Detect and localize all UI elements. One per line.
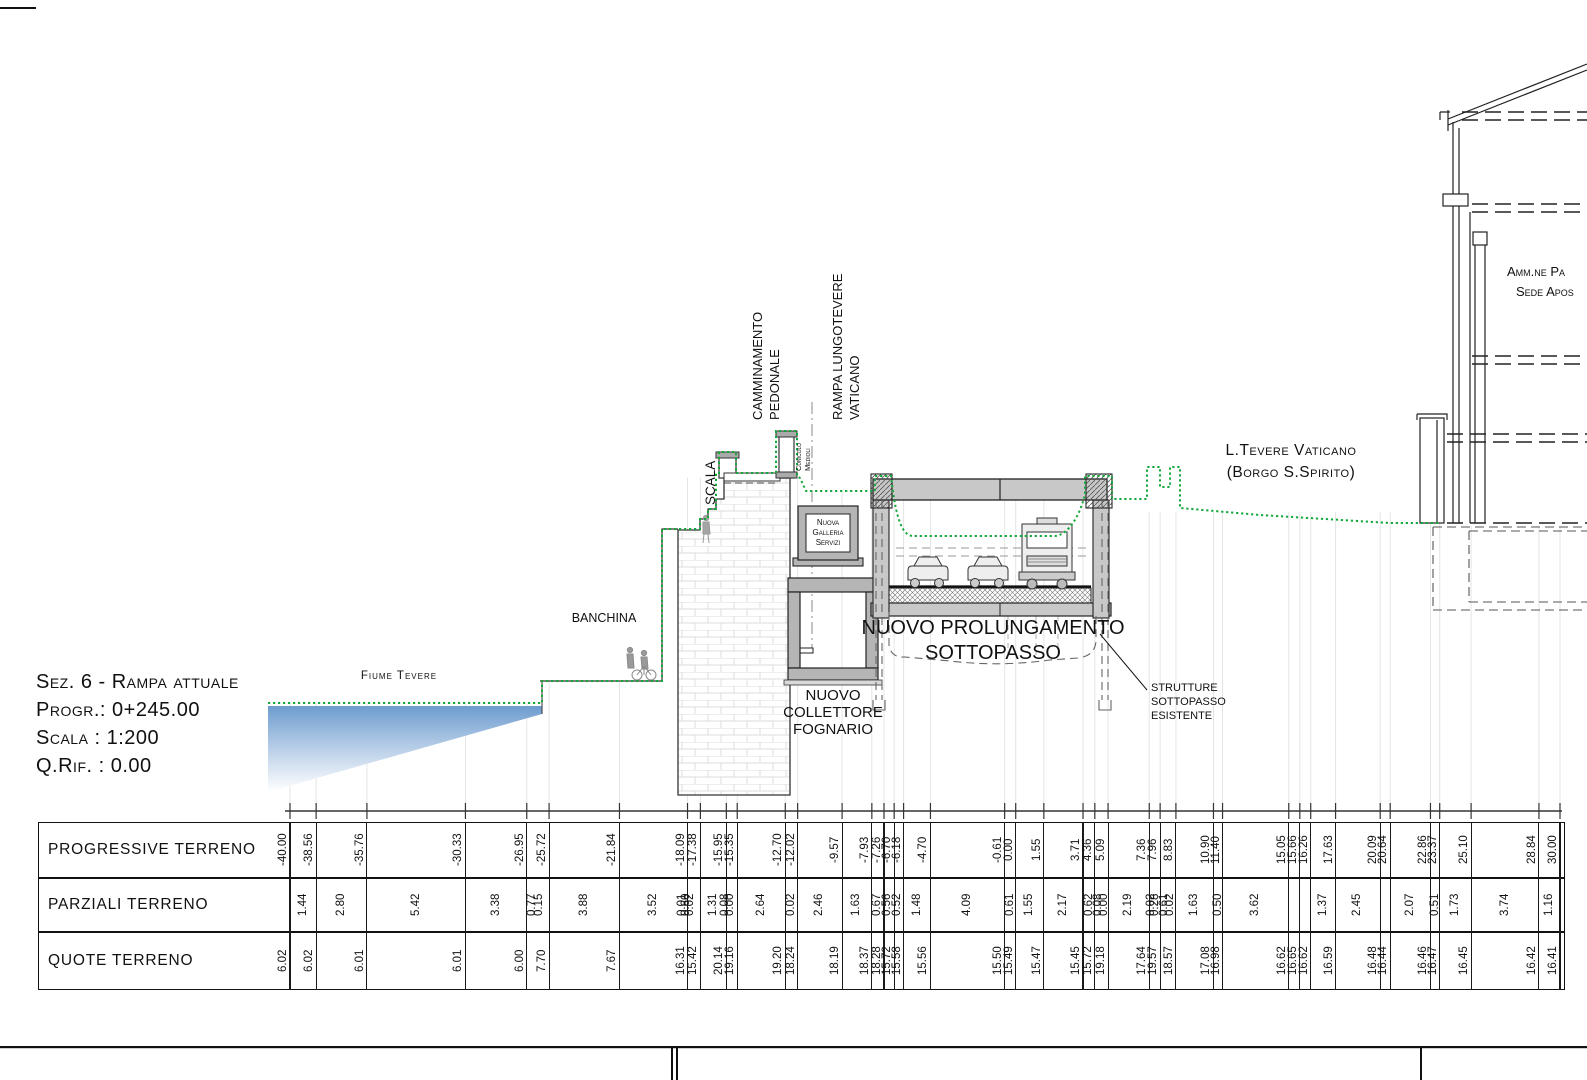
parziale-value: 3.88	[578, 881, 591, 929]
progressive-value: -26.95	[514, 825, 527, 875]
quote-value: 19.20	[772, 935, 785, 987]
quote-value: 18.24	[785, 935, 798, 987]
quote-value: 16.47	[1427, 935, 1440, 987]
parziale-value: 3.52	[647, 881, 660, 929]
progressive-value: -25.72	[536, 825, 549, 875]
quote-value: 6.02	[303, 935, 316, 987]
progressive-value: 8.83	[1163, 825, 1176, 875]
collettore-label-2: COLLETTORE	[783, 704, 883, 721]
parziale-value: 1.55	[1023, 881, 1036, 929]
quote-value: 15.42	[687, 935, 700, 987]
truck	[1019, 518, 1075, 589]
parziale-value: 2.19	[1122, 881, 1135, 929]
parziale-value: 4.09	[961, 881, 974, 929]
quote-value: 15.49	[1003, 935, 1016, 987]
quote-value: 7.70	[536, 935, 549, 987]
progressive-value: -12.70	[772, 825, 785, 875]
station-line	[619, 822, 620, 990]
progressive-value: 0.00	[1003, 825, 1016, 875]
progressive-value: -4.70	[917, 825, 930, 875]
quote-value: 6.01	[452, 935, 465, 987]
quote-value: 16.31	[675, 935, 688, 987]
galleria-label-1: Nuova	[817, 518, 839, 527]
cunicolo-label-1: Cunicolo	[794, 443, 803, 471]
parziale-value: 2.17	[1057, 881, 1070, 929]
quote-value: 16.98	[1210, 935, 1223, 987]
quote-value: 18.37	[859, 935, 872, 987]
quote-value: 15.58	[891, 935, 904, 987]
parziale-value: 0.52	[891, 881, 904, 929]
progressive-value: 1.55	[1031, 825, 1044, 875]
pedestrians-figures	[627, 647, 656, 680]
prolungamento-label-2: SOTTOPASSO	[925, 642, 1061, 664]
quote-value: 7.67	[606, 935, 619, 987]
progressive-value: -7.93	[859, 825, 872, 875]
rampa-label-1: RAMPA LUNGOTEVERE	[830, 273, 845, 420]
stair-parapet	[716, 431, 797, 483]
progressive-value: -40.00	[277, 825, 290, 875]
progressive-value: 25.10	[1458, 825, 1471, 875]
quote-value: 18.19	[829, 935, 842, 987]
strutture-label-3: ESISTENTE	[1151, 710, 1212, 722]
progressive-value: -18.09	[675, 825, 688, 875]
lungotevere-label-2: (Borgo S.Spirito)	[1227, 464, 1356, 481]
rampa-label-2: VATICANO	[847, 355, 862, 420]
camminamento-label-1: CAMMINAMENTO	[750, 312, 765, 420]
progressive-value: -12.02	[785, 825, 798, 875]
edificio-label-2: Sede Apos	[1516, 284, 1574, 299]
quote-value: 16.45	[1458, 935, 1471, 987]
camminamento-label-2: PEDONALE	[767, 349, 782, 420]
river-water	[268, 681, 542, 792]
progressive-value: 5.09	[1095, 825, 1108, 875]
parziale-value: 0.61	[1004, 881, 1017, 929]
section-info-block: Sez. 6 - Rampa attuale Progr.: 0+245.00 …	[36, 668, 239, 780]
parziale-value: 0.15	[533, 881, 546, 929]
progressive-value: 17.63	[1323, 825, 1336, 875]
parziale-value: 2.80	[335, 881, 348, 929]
lungotevere-label-1: L.Tevere Vaticano	[1226, 442, 1357, 459]
building-section	[1417, 64, 1587, 610]
progressive-value: 4.36	[1082, 825, 1095, 875]
section-progressiva: Progr.: 0+245.00	[36, 696, 239, 724]
quote-value: 6.00	[514, 935, 527, 987]
parziale-value: 1.16	[1543, 881, 1556, 929]
collettore-label-1: NUOVO	[805, 687, 860, 704]
quote-value: 19.57	[1147, 935, 1160, 987]
galleria-label-2: Galleria	[813, 528, 844, 537]
parziale-value: 2.45	[1351, 881, 1364, 929]
progressive-value: -30.33	[452, 825, 465, 875]
progressive-value: 28.84	[1526, 825, 1539, 875]
row-label-quote: QUOTE TERRENO	[48, 952, 193, 970]
row-label-progressive: PROGRESSIVE TERRENO	[48, 841, 256, 859]
parziale-value: 1.31	[707, 881, 720, 929]
quote-value: 6.01	[354, 935, 367, 987]
progressive-value: -35.76	[354, 825, 367, 875]
progressive-value: -21.84	[606, 825, 619, 875]
parziale-value: 0.02	[684, 881, 697, 929]
progressive-value: 20.64	[1377, 825, 1390, 875]
progressive-value: 11.40	[1210, 825, 1223, 875]
quote-value: 15.72	[1082, 935, 1095, 987]
parziale-value: 1.44	[297, 881, 310, 929]
strutture-leader-line	[1100, 634, 1147, 690]
edificio-label-1: Amm.ne Pa	[1507, 264, 1565, 279]
parziale-value: 1.48	[911, 881, 924, 929]
parziale-value: 2.07	[1404, 881, 1417, 929]
parziale-value: 3.74	[1499, 881, 1512, 929]
parziale-value: 5.42	[410, 881, 423, 929]
prolungamento-label-1: NUOVO PROLUNGAMENTO	[862, 617, 1125, 639]
strutture-label-2: SOTTOPASSO	[1151, 696, 1226, 708]
parziale-value: 1.63	[850, 881, 863, 929]
drawing-sheet: Nuova Galleria Servizi	[0, 0, 1587, 1080]
section-title: Sez. 6 - Rampa attuale	[36, 668, 239, 696]
progressive-value: -38.56	[303, 825, 316, 875]
progressive-value: -6.18	[891, 825, 904, 875]
parziale-value: 3.38	[490, 881, 503, 929]
galleria-servizi-box: Nuova Galleria Servizi	[793, 506, 863, 566]
quay-wall	[540, 478, 790, 795]
strutture-label-1: STRUTTURE	[1151, 682, 1218, 694]
collettore-label-3: FOGNARIO	[793, 721, 873, 738]
progressive-value: 23.37	[1427, 825, 1440, 875]
progressive-value: 16.26	[1298, 825, 1311, 875]
scala-label: SCALA	[703, 461, 718, 505]
quote-value: 19.16	[724, 935, 737, 987]
quote-value: 16.42	[1526, 935, 1539, 987]
quote-value: 18.57	[1163, 935, 1176, 987]
parziale-value: 2.64	[755, 881, 768, 929]
fiume-tevere-label: Fiume Tevere	[361, 670, 437, 682]
progressive-value: 7.96	[1147, 825, 1160, 875]
galleria-label-3: Servizi	[816, 538, 841, 547]
progressive-value: -15.35	[724, 825, 737, 875]
station-line	[930, 822, 931, 990]
parziale-value: 1.37	[1317, 881, 1330, 929]
quote-value: 16.59	[1323, 935, 1336, 987]
progressive-value: -9.57	[829, 825, 842, 875]
parziale-value: 2.46	[813, 881, 826, 929]
quote-value: 15.56	[917, 935, 930, 987]
quote-value: 6.02	[277, 935, 290, 987]
parziale-value: 0.02	[1164, 881, 1177, 929]
car-1	[908, 557, 948, 588]
quote-value: 19.18	[1095, 935, 1108, 987]
parziale-value: 0.00	[724, 881, 737, 929]
banchina-label: BANCHINA	[572, 611, 637, 625]
station-line	[465, 822, 466, 990]
parziale-value: 0.51	[1429, 881, 1442, 929]
parziale-value: 0.02	[785, 881, 798, 929]
row-label-parziali: PARZIALI TERRENO	[48, 896, 208, 914]
cunicolo-label-2: Medioli	[803, 448, 812, 471]
quote-value: 16.62	[1298, 935, 1311, 987]
car-2	[968, 557, 1008, 588]
section-scale: Scala : 1:200	[36, 724, 239, 752]
quote-value: 16.44	[1377, 935, 1390, 987]
progressive-value: 30.00	[1547, 825, 1560, 875]
progressive-value: -17.38	[687, 825, 700, 875]
quote-value: 15.47	[1031, 935, 1044, 987]
quote-value: 16.41	[1547, 935, 1560, 987]
parziale-value: 0.50	[1212, 881, 1225, 929]
parziale-value: 3.62	[1249, 881, 1262, 929]
parziale-value: 1.73	[1449, 881, 1462, 929]
parziale-value: 0.00	[1098, 881, 1111, 929]
section-qrif: Q.Rif. : 0.00	[36, 752, 239, 780]
parziale-value: 1.63	[1188, 881, 1201, 929]
